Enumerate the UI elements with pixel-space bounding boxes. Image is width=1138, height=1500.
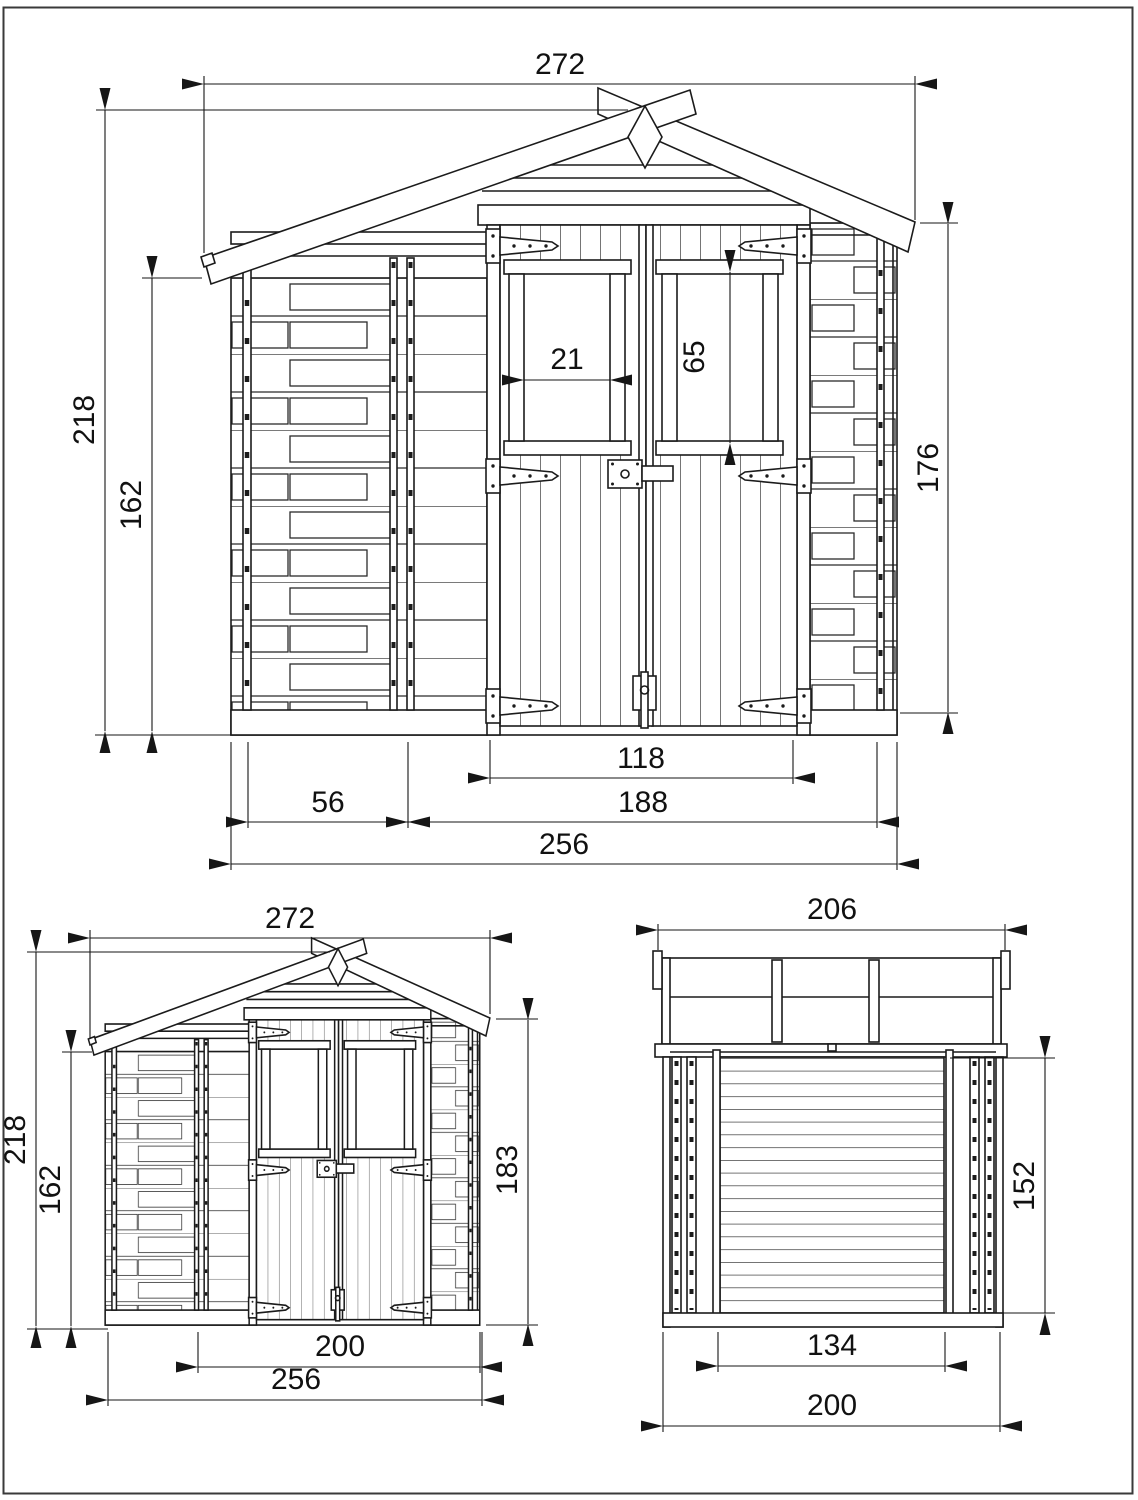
dim-label-base-width-small: 256 [271, 1363, 321, 1396]
dim-label-overall-height: 218 [68, 395, 101, 445]
dim-label-roof-width-small: 272 [265, 902, 315, 935]
dim-label-side-wall-height: 152 [1008, 1161, 1041, 1211]
dim-label-base-depth: 200 [807, 1389, 857, 1422]
dim-label-window-width: 21 [550, 343, 583, 376]
dim-label-roof-width: 272 [535, 48, 585, 81]
dim-label-opening-width: 188 [618, 786, 668, 819]
dim-label-frame-width-small: 200 [315, 1330, 365, 1363]
dim-label-roof-depth: 206 [807, 893, 857, 926]
front-view-shed [201, 88, 915, 735]
dim-label-side-panel-width: 56 [311, 786, 344, 819]
dim-label-wall-height: 162 [115, 480, 148, 530]
dim-label-door-height-small: 183 [491, 1145, 524, 1195]
side-view: 206 152 134 200 [653, 893, 1055, 1432]
dim-label-eave-height: 176 [912, 443, 945, 493]
front-view-small-shed [88, 938, 490, 1325]
dim-label-inner-depth: 134 [807, 1329, 857, 1362]
dim-label-overall-height-small: 218 [0, 1115, 32, 1165]
dim-label-window-height: 65 [678, 340, 711, 373]
dim-label-door-width: 118 [617, 742, 665, 775]
side-view-shed [653, 951, 1010, 1327]
front-view: 272 218 162 176 21 65 118 [68, 48, 958, 870]
drawing-page: 272 218 162 176 21 65 118 [0, 0, 1138, 1500]
front-view-small: 272 218 162 183 200 256 [0, 902, 538, 1406]
shed-technical-drawing: 272 218 162 176 21 65 118 [0, 0, 1138, 1500]
dim-label-base-width: 256 [539, 828, 589, 861]
dim-label-wall-height-small: 162 [34, 1165, 67, 1215]
